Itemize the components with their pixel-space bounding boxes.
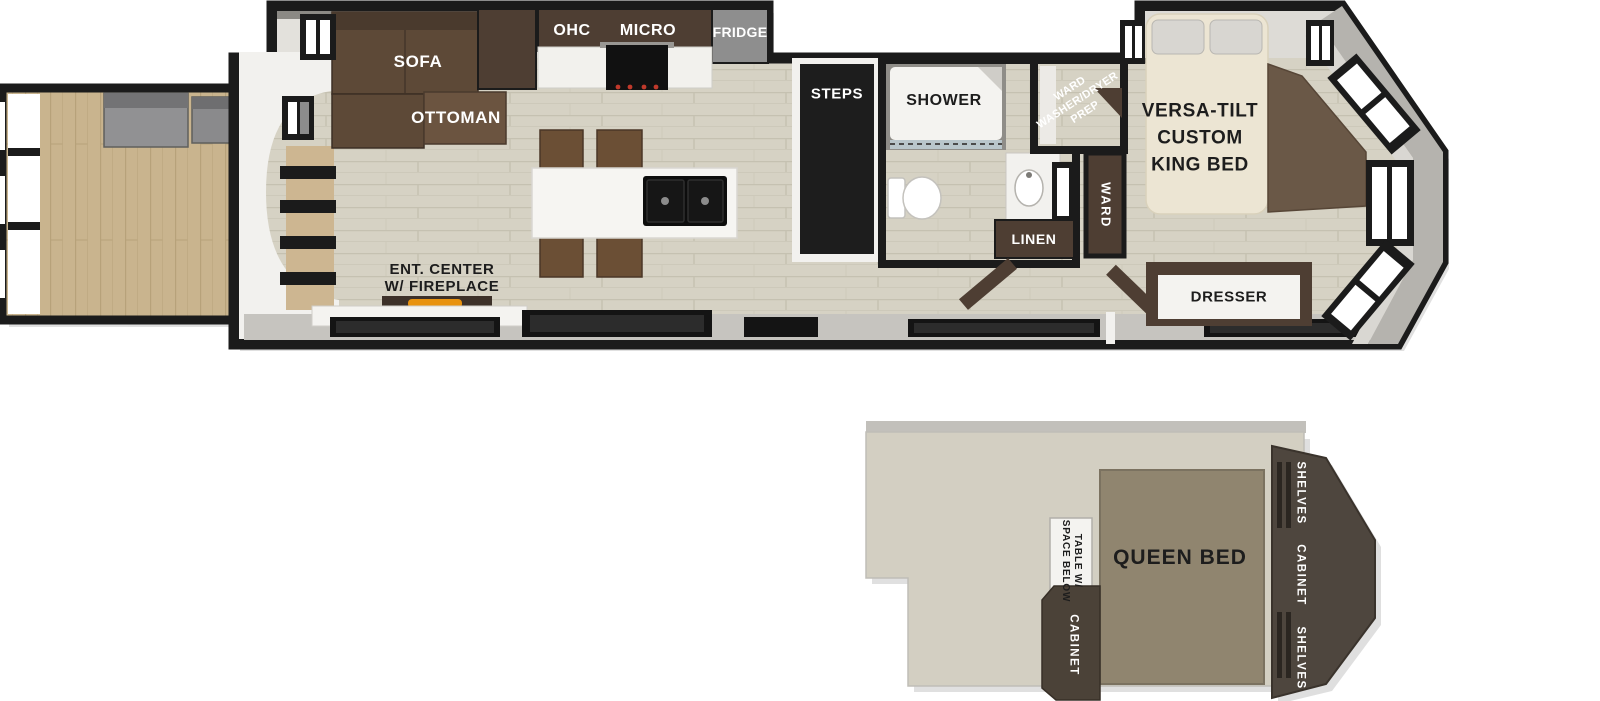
ottoman-label: OTTOMAN bbox=[411, 108, 501, 128]
dresser-label: DRESSER bbox=[1191, 288, 1268, 305]
shower-label: SHOWER bbox=[906, 92, 982, 110]
bed-slide-window-right bbox=[1306, 20, 1334, 66]
loft-shelf-unit bbox=[1272, 446, 1375, 698]
cabinet-right-label: CABINET bbox=[1293, 544, 1306, 606]
pillow bbox=[1210, 20, 1262, 54]
bath-window bbox=[1052, 162, 1074, 222]
queen-bed-label: QUEEN BED bbox=[1113, 546, 1247, 570]
living-slide-window bbox=[300, 14, 336, 60]
cap-window-middle bbox=[1366, 160, 1414, 246]
pillow bbox=[1152, 20, 1204, 54]
shelves-top-label: SHELVES bbox=[1293, 461, 1306, 524]
ohc-label: OHC bbox=[553, 22, 590, 40]
ent-center-label: ENT. CENTER W/ FIREPLACE bbox=[385, 261, 500, 296]
rear-deck bbox=[0, 88, 237, 320]
deck-rail-walk bbox=[8, 94, 40, 314]
linen-label: LINEN bbox=[1012, 231, 1057, 247]
rear-window bbox=[282, 96, 314, 140]
loft-table-label: TABLE W/ SPACE BELOW bbox=[1059, 520, 1083, 603]
deck-bench-small bbox=[192, 97, 232, 143]
double-sink bbox=[643, 176, 727, 226]
dining-chair bbox=[540, 130, 583, 169]
steps-label: STEPS bbox=[811, 85, 863, 102]
floorplan-diagram: SOFA OTTOMAN OHC MICRO FRIDGE STEPS SHOW… bbox=[0, 0, 1600, 701]
floorplan-drawing bbox=[0, 0, 1600, 701]
loft-cabinet-label: CABINET bbox=[1066, 614, 1079, 676]
sofa-label: SOFA bbox=[394, 52, 443, 72]
dining-chair bbox=[540, 237, 583, 277]
ward-label: WARD bbox=[1098, 182, 1113, 228]
micro-label: MICRO bbox=[620, 22, 676, 40]
dining-chair bbox=[597, 237, 642, 277]
toilet-shape bbox=[888, 177, 941, 219]
rear-cap-entry bbox=[239, 52, 339, 339]
shelves-bottom-label: SHELVES bbox=[1293, 626, 1306, 689]
bed-slide-window-left bbox=[1120, 20, 1145, 64]
dining-chair bbox=[597, 130, 642, 169]
window bbox=[744, 317, 818, 337]
vanity-sink bbox=[1006, 153, 1060, 223]
range-stove bbox=[606, 45, 668, 90]
wardrobe-cabinet bbox=[478, 9, 536, 89]
fridge-label: FRIDGE bbox=[713, 24, 768, 40]
king-bed-label: VERSA-TILT CUSTOM KING BED bbox=[1142, 99, 1258, 180]
deck-bench-large bbox=[104, 93, 188, 147]
queen-bed-shape bbox=[1100, 470, 1264, 684]
